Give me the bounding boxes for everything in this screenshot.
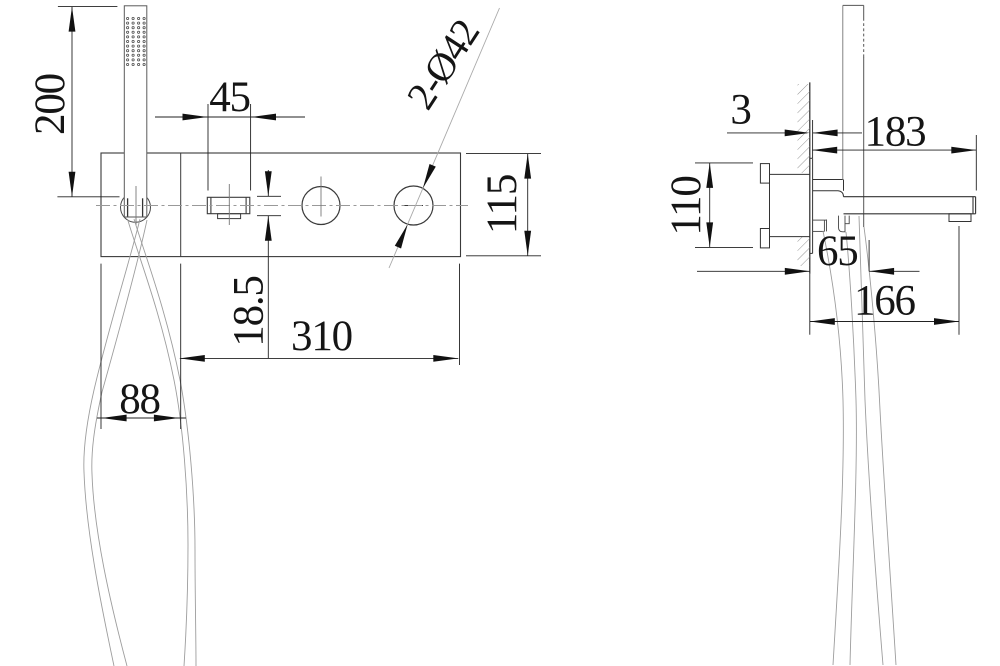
svg-text:200: 200 [27,74,74,135]
svg-text:45: 45 [209,74,250,121]
svg-text:88: 88 [119,376,160,423]
svg-text:18.5: 18.5 [226,276,273,346]
svg-text:115: 115 [479,175,526,234]
svg-text:3: 3 [730,87,750,134]
svg-text:65: 65 [817,228,858,275]
svg-text:183: 183 [865,108,926,155]
svg-text:166: 166 [854,278,916,325]
svg-text:110: 110 [663,176,710,235]
svg-text:310: 310 [291,313,352,360]
